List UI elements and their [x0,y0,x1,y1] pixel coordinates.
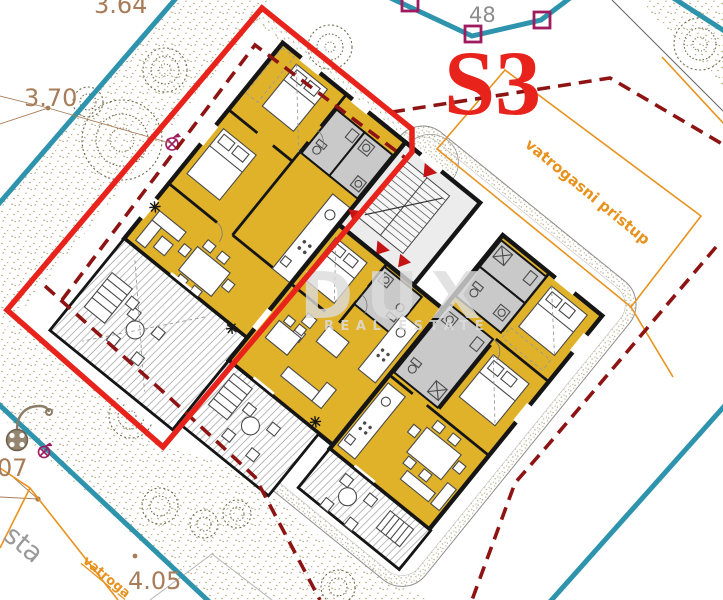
boundary-line-se [548,402,723,600]
elevation-label: 3.64 [94,0,147,19]
site-plan-canvas: vatrogasni pristup vatroga DUX REAL ESTA… [0,0,723,600]
fire-access-label-partial: vatroga [79,554,132,600]
elevation-label: 07 [0,454,28,482]
elevation-label: 3.70 [24,84,77,112]
watermark: DUX REAL ESTATE [300,260,493,334]
watermark-tagline: REAL ESTATE [324,319,490,334]
road-label-partial: sta [0,519,49,569]
floor-plan-drawing: vatrogasni pristup vatroga DUX REAL ESTA… [0,0,723,600]
elevation-label: 4.05 [128,567,181,595]
unit-label-s3: S3 [444,32,541,134]
parcel-number-label: 48 [469,3,496,27]
